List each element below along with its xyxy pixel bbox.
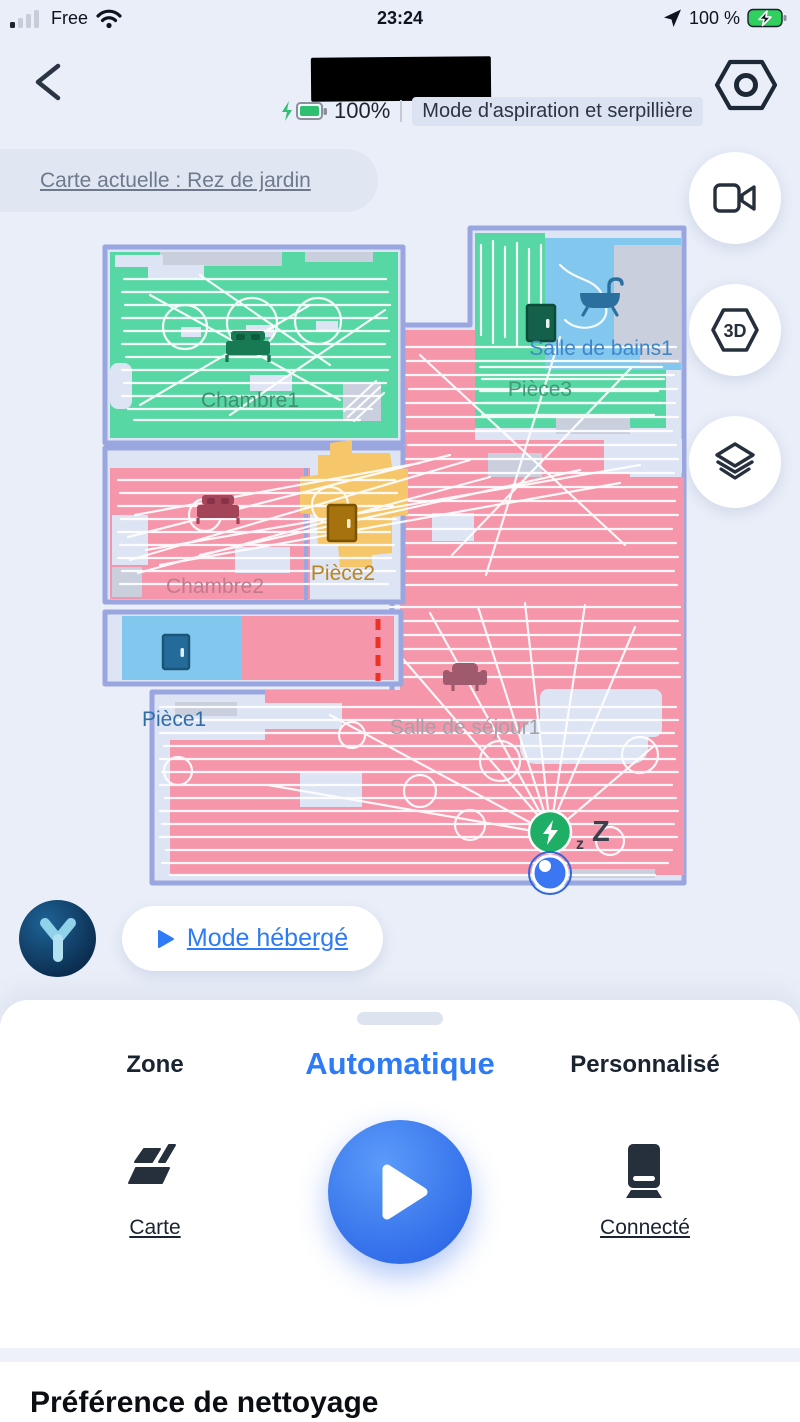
map-tiles-icon — [126, 1141, 184, 1195]
battery-percent-label: 100 % — [689, 8, 740, 29]
room-label-piece1[interactable]: Pièce1 — [142, 708, 206, 731]
floor-map[interactable]: Chambre1 Salle de bains1 Pièce3 Chambre2… — [0, 215, 800, 905]
obstacle-patch — [305, 252, 373, 262]
location-arrow-icon — [663, 9, 682, 28]
door-icon — [328, 505, 356, 541]
section-title: Préférence de nettoyage — [30, 1386, 378, 1420]
robot-status-row: 100% Mode d'aspiration et serpillière — [280, 96, 703, 126]
floor-patch — [432, 513, 474, 541]
app-screen: Free 23:24 100 % — [0, 0, 800, 1422]
tab-personnalise[interactable]: Personnalisé — [570, 1051, 719, 1079]
gear-hexagon-icon — [712, 54, 780, 116]
sleep-z-big: Z — [592, 816, 610, 848]
back-button[interactable] — [28, 58, 72, 106]
battery-charging-icon — [747, 7, 788, 29]
charging-dock-marker[interactable] — [529, 811, 571, 853]
door-icon — [527, 305, 555, 341]
obstacle-patch — [614, 245, 681, 347]
sleep-z-small: z — [576, 836, 584, 853]
tab-automatique[interactable]: Automatique — [305, 1046, 494, 1082]
sheet-drag-handle[interactable] — [357, 1012, 443, 1025]
hosted-mode-label: Mode hébergé — [187, 924, 348, 953]
hosted-mode-button[interactable]: Mode hébergé — [122, 906, 383, 971]
robot-battery-label: 100% — [334, 98, 390, 124]
robot-avatar[interactable] — [19, 900, 96, 977]
status-bar: Free 23:24 100 % — [0, 0, 800, 44]
dock-icon — [622, 1142, 668, 1200]
current-map-label: Carte actuelle : Rez de jardin — [40, 169, 311, 193]
robot-marker[interactable] — [529, 852, 571, 894]
charging-bolt-icon — [280, 99, 294, 123]
current-map-pill[interactable]: Carte actuelle : Rez de jardin — [0, 149, 378, 212]
floor-patch — [148, 265, 204, 278]
floor-patch — [300, 771, 362, 807]
separator — [400, 100, 402, 122]
room-label-salle-de-bains1[interactable]: Salle de bains1 — [529, 337, 673, 360]
play-small-icon — [157, 929, 175, 949]
floor-patch — [316, 321, 338, 331]
section-divider — [0, 1348, 800, 1362]
play-icon — [365, 1159, 435, 1225]
obstacle-patch — [160, 252, 282, 266]
chevron-left-icon — [28, 58, 72, 106]
brand-y-logo-icon — [35, 915, 81, 963]
tab-zone[interactable]: Zone — [126, 1051, 183, 1079]
door-icon — [163, 635, 189, 669]
dock-status-button[interactable] — [622, 1142, 668, 1205]
room-label-piece3[interactable]: Pièce3 — [508, 378, 572, 401]
map-action-label[interactable]: Carte — [129, 1216, 180, 1240]
device-name-redacted — [311, 56, 491, 102]
room-label-salle-de-sejour1[interactable]: Salle de séjour1 — [390, 716, 541, 739]
cleaning-mode-label: Mode d'aspiration et serpillière — [412, 97, 703, 126]
start-cleaning-button[interactable] — [328, 1120, 472, 1264]
room-label-chambre1[interactable]: Chambre1 — [201, 389, 299, 412]
dock-action-label[interactable]: Connecté — [600, 1216, 690, 1240]
map-edit-button[interactable] — [126, 1141, 184, 1200]
room-label-chambre2[interactable]: Chambre2 — [166, 575, 264, 598]
room-label-piece2[interactable]: Pièce2 — [311, 562, 375, 585]
robot-battery-icon — [296, 100, 328, 122]
video-camera-icon — [712, 180, 758, 216]
settings-button[interactable] — [712, 54, 780, 116]
room-piece1-pink-part — [242, 616, 394, 680]
